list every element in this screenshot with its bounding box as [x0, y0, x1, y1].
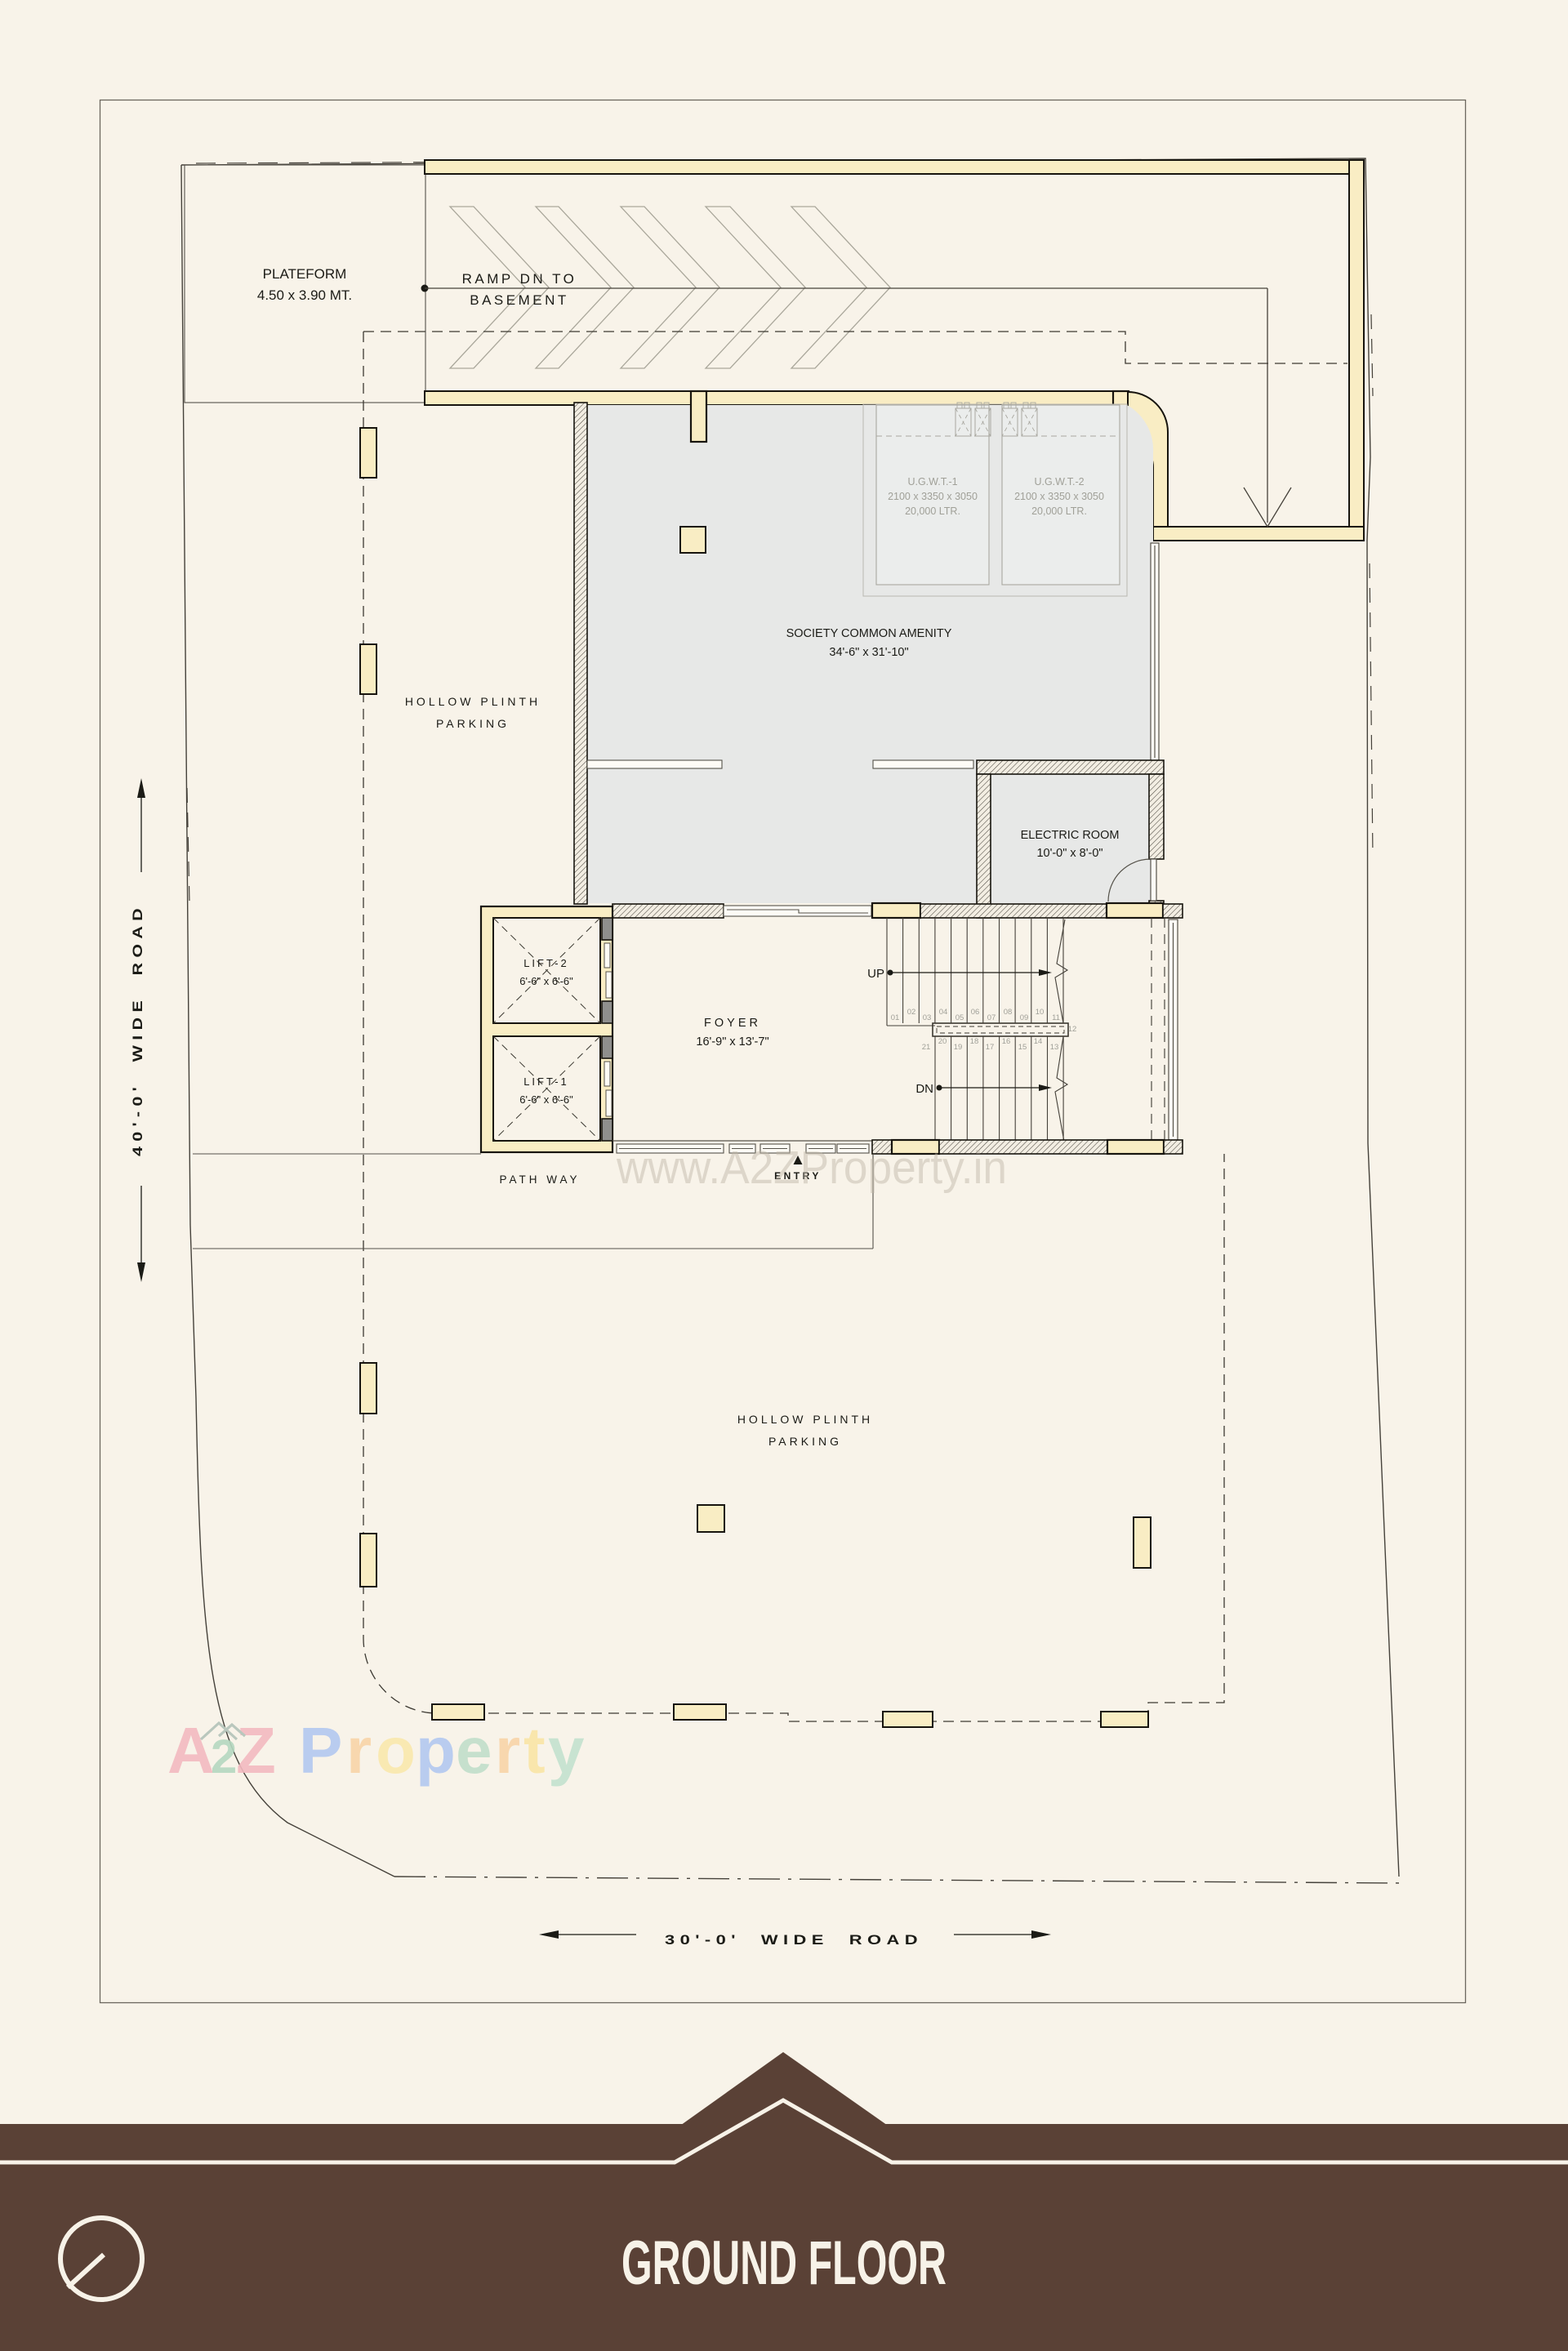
- svg-text:40'-0' WIDE ROAD: 40'-0' WIDE ROAD: [130, 903, 145, 1156]
- svg-text:09: 09: [1020, 1013, 1029, 1022]
- svg-text:PLATEFORM: PLATEFORM: [263, 266, 347, 282]
- svg-text:LIFT-2: LIFT-2: [523, 957, 569, 969]
- svg-text:10: 10: [1036, 1008, 1045, 1017]
- svg-text:P: P: [299, 1714, 342, 1787]
- svg-text:6'-6" x 6'-6": 6'-6" x 6'-6": [519, 1093, 573, 1106]
- svg-text:SOCIETY COMMON AMENITY: SOCIETY COMMON AMENITY: [786, 627, 952, 640]
- svg-text:13: 13: [1050, 1043, 1059, 1052]
- svg-text:18: 18: [970, 1037, 979, 1046]
- svg-text:UP: UP: [867, 967, 884, 981]
- svg-text:p: p: [416, 1714, 456, 1787]
- svg-text:Z: Z: [236, 1714, 276, 1787]
- svg-text:07: 07: [987, 1013, 996, 1022]
- svg-text:14: 14: [1034, 1037, 1043, 1046]
- svg-text:02: 02: [907, 1008, 916, 1017]
- svg-text:21: 21: [922, 1043, 931, 1052]
- svg-text:ELECTRIC ROOM: ELECTRIC ROOM: [1021, 829, 1120, 842]
- svg-text:12: 12: [1068, 1025, 1077, 1034]
- svg-text:LIFT-1: LIFT-1: [523, 1075, 569, 1088]
- svg-text:t: t: [523, 1714, 546, 1787]
- svg-text:DN: DN: [915, 1082, 933, 1096]
- svg-text:r: r: [495, 1714, 520, 1787]
- svg-text:r: r: [346, 1714, 372, 1787]
- svg-text:e: e: [456, 1714, 492, 1787]
- svg-text:15: 15: [1018, 1043, 1027, 1052]
- svg-text:20,000 LTR.: 20,000 LTR.: [1031, 505, 1087, 517]
- svg-text:03: 03: [923, 1013, 932, 1022]
- svg-text:U.G.W.T.-2: U.G.W.T.-2: [1034, 476, 1084, 488]
- svg-text:2100 x 3350 x 3050: 2100 x 3350 x 3050: [888, 491, 978, 502]
- svg-text:PARKING: PARKING: [768, 1435, 842, 1448]
- svg-text:4.50 x 3.90 MT.: 4.50 x 3.90 MT.: [257, 287, 352, 303]
- svg-text:01: 01: [891, 1013, 900, 1022]
- svg-text:34'-6" x 31'-10": 34'-6" x 31'-10": [829, 646, 908, 659]
- svg-text:2100 x 3350 x 3050: 2100 x 3350 x 3050: [1014, 491, 1104, 502]
- svg-text:PATH WAY: PATH WAY: [500, 1173, 581, 1186]
- svg-text:A: A: [167, 1714, 215, 1787]
- svg-text:BASEMENT: BASEMENT: [470, 292, 569, 308]
- svg-text:04: 04: [939, 1008, 948, 1017]
- svg-text:10'-0" x 8'-0": 10'-0" x 8'-0": [1036, 847, 1102, 860]
- svg-text:06: 06: [971, 1008, 980, 1017]
- svg-text:U.G.W.T.-1: U.G.W.T.-1: [907, 476, 957, 488]
- svg-text:PARKING: PARKING: [436, 717, 510, 730]
- svg-text:11: 11: [1052, 1013, 1060, 1022]
- svg-text:19: 19: [954, 1043, 963, 1052]
- svg-text:2: 2: [211, 1730, 237, 1783]
- svg-text:16'-9" x 13'-7": 16'-9" x 13'-7": [696, 1035, 768, 1049]
- svg-text:05: 05: [955, 1013, 964, 1022]
- svg-text:GROUND FLOOR: GROUND FLOOR: [621, 2229, 947, 2298]
- svg-text:HOLLOW PLINTH: HOLLOW PLINTH: [737, 1413, 873, 1426]
- svg-text:o: o: [376, 1714, 416, 1787]
- svg-text:www.A2ZProperty.in: www.A2ZProperty.in: [616, 1142, 1007, 1194]
- svg-text:HOLLOW PLINTH: HOLLOW PLINTH: [405, 695, 541, 708]
- svg-text:6'-6" x 6'-6": 6'-6" x 6'-6": [519, 975, 573, 987]
- svg-text:20: 20: [938, 1037, 947, 1046]
- svg-text:17: 17: [986, 1043, 995, 1052]
- svg-text:y: y: [548, 1714, 585, 1787]
- svg-text:20,000 LTR.: 20,000 LTR.: [905, 505, 960, 517]
- svg-text:30'-0' WIDE ROAD: 30'-0' WIDE ROAD: [665, 1932, 923, 1948]
- svg-text:16: 16: [1002, 1037, 1011, 1046]
- svg-text:FOYER: FOYER: [704, 1017, 761, 1030]
- svg-text:08: 08: [1004, 1008, 1013, 1017]
- svg-text:RAMP DN TO: RAMP DN TO: [462, 271, 577, 287]
